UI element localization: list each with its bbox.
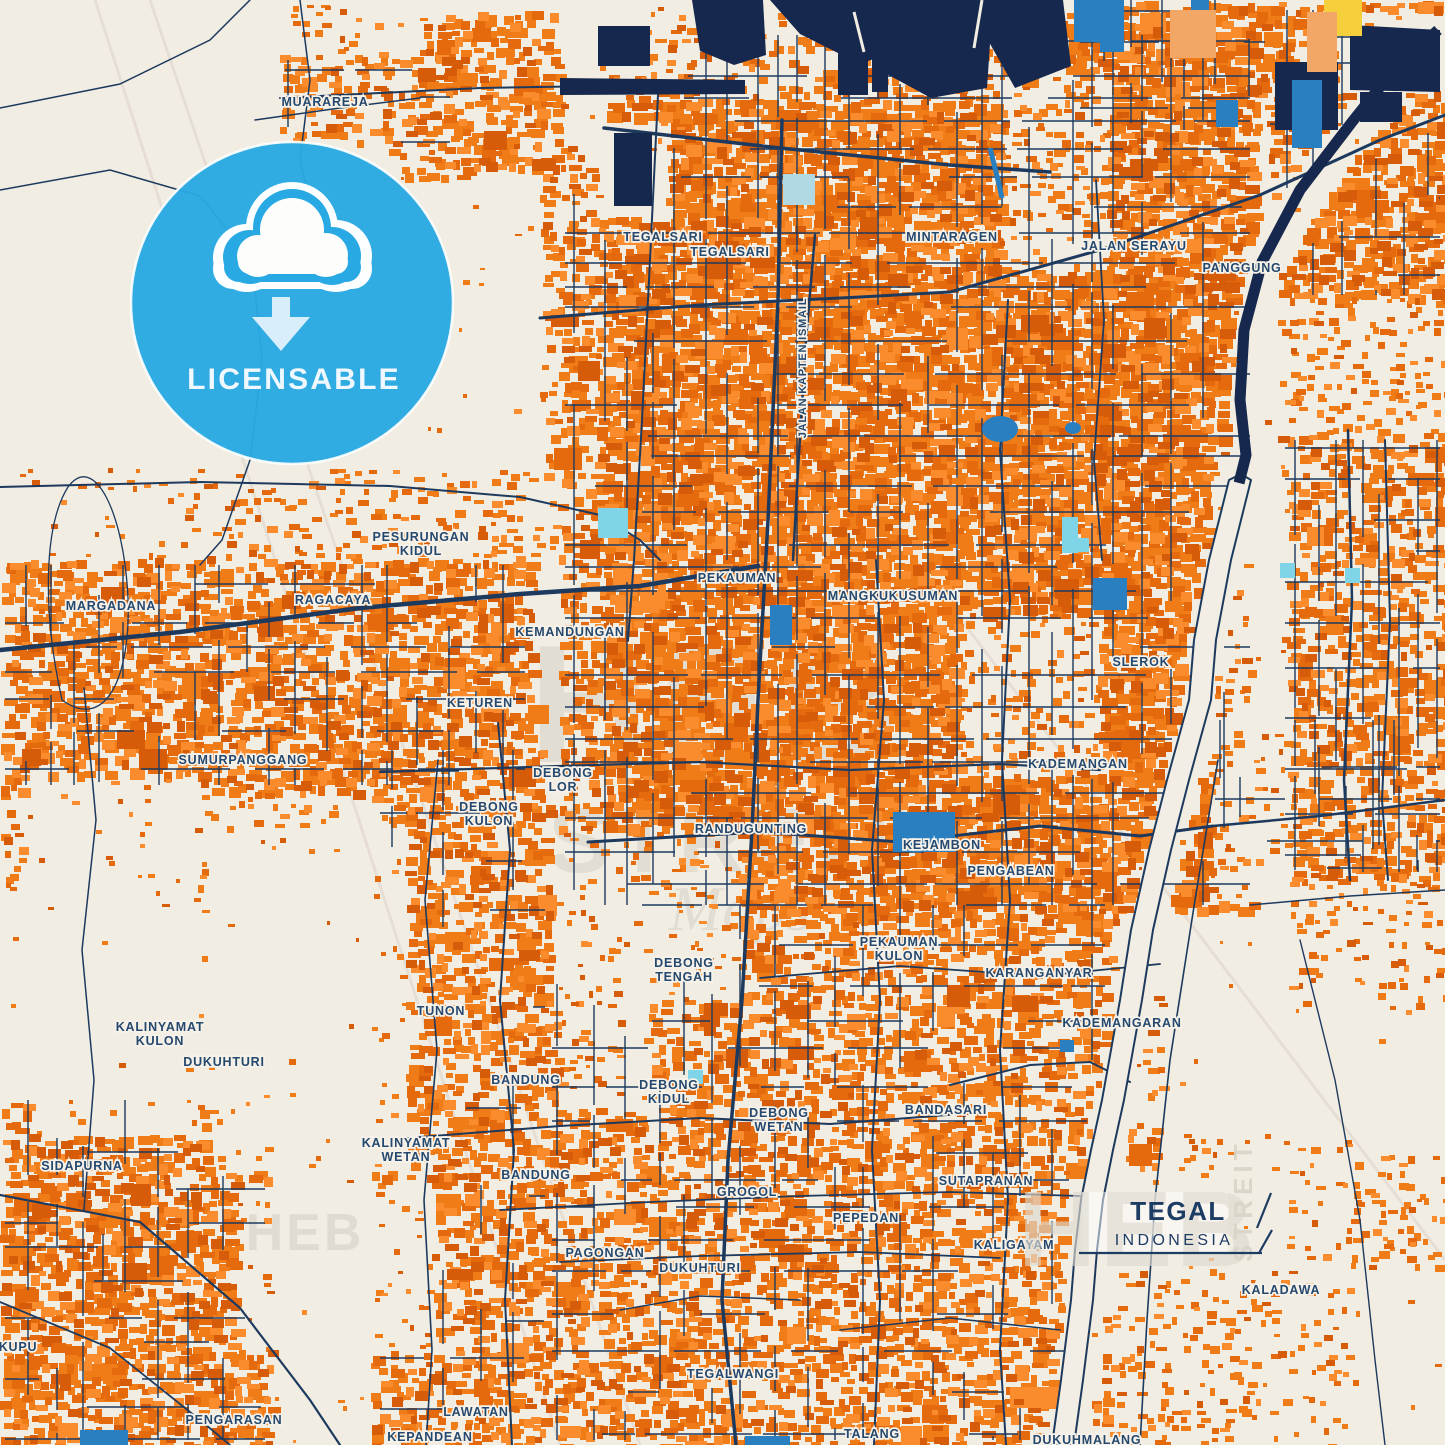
svg-text:KEMANDUNGAN: KEMANDUNGAN <box>515 625 625 639</box>
svg-text:MANGKUKUSUMAN: MANGKUKUSUMAN <box>828 589 959 603</box>
svg-text:KETUREN: KETUREN <box>447 696 513 710</box>
svg-text:PENGARASAN: PENGARASAN <box>186 1413 283 1427</box>
svg-text:KADEMANGAN: KADEMANGAN <box>1028 757 1128 771</box>
svg-text:KULON: KULON <box>465 814 513 828</box>
svg-text:PAGONGAN: PAGONGAN <box>565 1246 644 1260</box>
svg-text:DEBONG: DEBONG <box>533 766 593 780</box>
svg-text:HEB: HEB <box>1018 1168 1258 1289</box>
svg-text:SUMURPANGGANG: SUMURPANGGANG <box>179 753 308 767</box>
svg-text:KIDUL: KIDUL <box>400 544 442 558</box>
svg-text:KEJAMBON: KEJAMBON <box>903 838 981 852</box>
svg-text:INDONESIA: INDONESIA <box>1115 1232 1234 1249</box>
svg-text:BANDUNG: BANDUNG <box>491 1073 561 1087</box>
svg-text:RAGACAYA: RAGACAYA <box>295 593 371 607</box>
svg-text:MUARAREJA: MUARAREJA <box>281 95 368 109</box>
svg-text:SIDAPURNA: SIDAPURNA <box>41 1159 123 1173</box>
svg-text:SLEROK: SLEROK <box>1113 655 1170 669</box>
svg-text:DUKUHTURI: DUKUHTURI <box>183 1055 265 1069</box>
svg-text:DEBONG: DEBONG <box>459 800 519 814</box>
svg-text:BANDUNG: BANDUNG <box>501 1168 571 1182</box>
svg-text:DEBONG: DEBONG <box>654 956 714 970</box>
svg-text:DUKUHMALANG: DUKUHMALANG <box>1033 1433 1142 1445</box>
svg-text:BANDASARI: BANDASARI <box>905 1103 987 1117</box>
svg-text:KULON: KULON <box>875 949 923 963</box>
svg-text:LOR: LOR <box>549 780 578 794</box>
svg-text:KUPU: KUPU <box>0 1340 37 1354</box>
svg-text:PEKAUMAN: PEKAUMAN <box>860 935 939 949</box>
svg-text:KARANGANYAR: KARANGANYAR <box>986 966 1093 980</box>
svg-text:LAWATAN: LAWATAN <box>443 1405 509 1419</box>
svg-text:MARGADANA: MARGADANA <box>66 599 157 613</box>
svg-text:KALINYAMAT: KALINYAMAT <box>116 1020 205 1034</box>
svg-text:JALAN KAPTEN ISMAIL: JALAN KAPTEN ISMAIL <box>797 298 809 438</box>
svg-text:TENGAH: TENGAH <box>655 970 713 984</box>
svg-text:TEGALSARI: TEGALSARI <box>623 230 702 244</box>
svg-text:DEBONG: DEBONG <box>749 1106 809 1120</box>
svg-text:PEKAUMAN: PEKAUMAN <box>698 571 777 585</box>
svg-text:JALAN SERAYU: JALAN SERAYU <box>1081 239 1187 253</box>
svg-text:WETAN: WETAN <box>382 1150 431 1164</box>
svg-text:DUKUHTURI: DUKUHTURI <box>659 1261 741 1275</box>
svg-text:TUNON: TUNON <box>417 1004 465 1018</box>
svg-text:MINTARAGEN: MINTARAGEN <box>906 230 998 244</box>
svg-text:PESURUNGAN: PESURUNGAN <box>373 530 470 544</box>
svg-text:TEGALSARI: TEGALSARI <box>690 245 769 259</box>
svg-text:WETAN: WETAN <box>755 1120 804 1134</box>
svg-text:KULON: KULON <box>136 1034 184 1048</box>
svg-text:TEGAL: TEGAL <box>1130 1196 1226 1226</box>
svg-text:TALANG: TALANG <box>844 1427 900 1441</box>
svg-text:KIDUL: KIDUL <box>648 1092 690 1106</box>
svg-text:KADEMANGARAN: KADEMANGARAN <box>1062 1016 1181 1030</box>
svg-text:LICENSABLE: LICENSABLE <box>187 363 401 396</box>
svg-text:PEPEDAN: PEPEDAN <box>833 1211 899 1225</box>
svg-text:PENGABEAN: PENGABEAN <box>967 864 1054 878</box>
svg-text:KEPANDEAN: KEPANDEAN <box>387 1430 472 1444</box>
svg-text:RANDUGUNTING: RANDUGUNTING <box>695 822 807 836</box>
svg-text:KALINYAMAT: KALINYAMAT <box>362 1136 451 1150</box>
svg-text:GROGOL: GROGOL <box>717 1185 777 1199</box>
svg-text:HEB: HEB <box>246 1204 365 1262</box>
svg-text:PANGGUNG: PANGGUNG <box>1202 261 1281 275</box>
svg-text:TEGALWANGI: TEGALWANGI <box>687 1367 779 1381</box>
svg-text:DEBONG: DEBONG <box>639 1078 699 1092</box>
